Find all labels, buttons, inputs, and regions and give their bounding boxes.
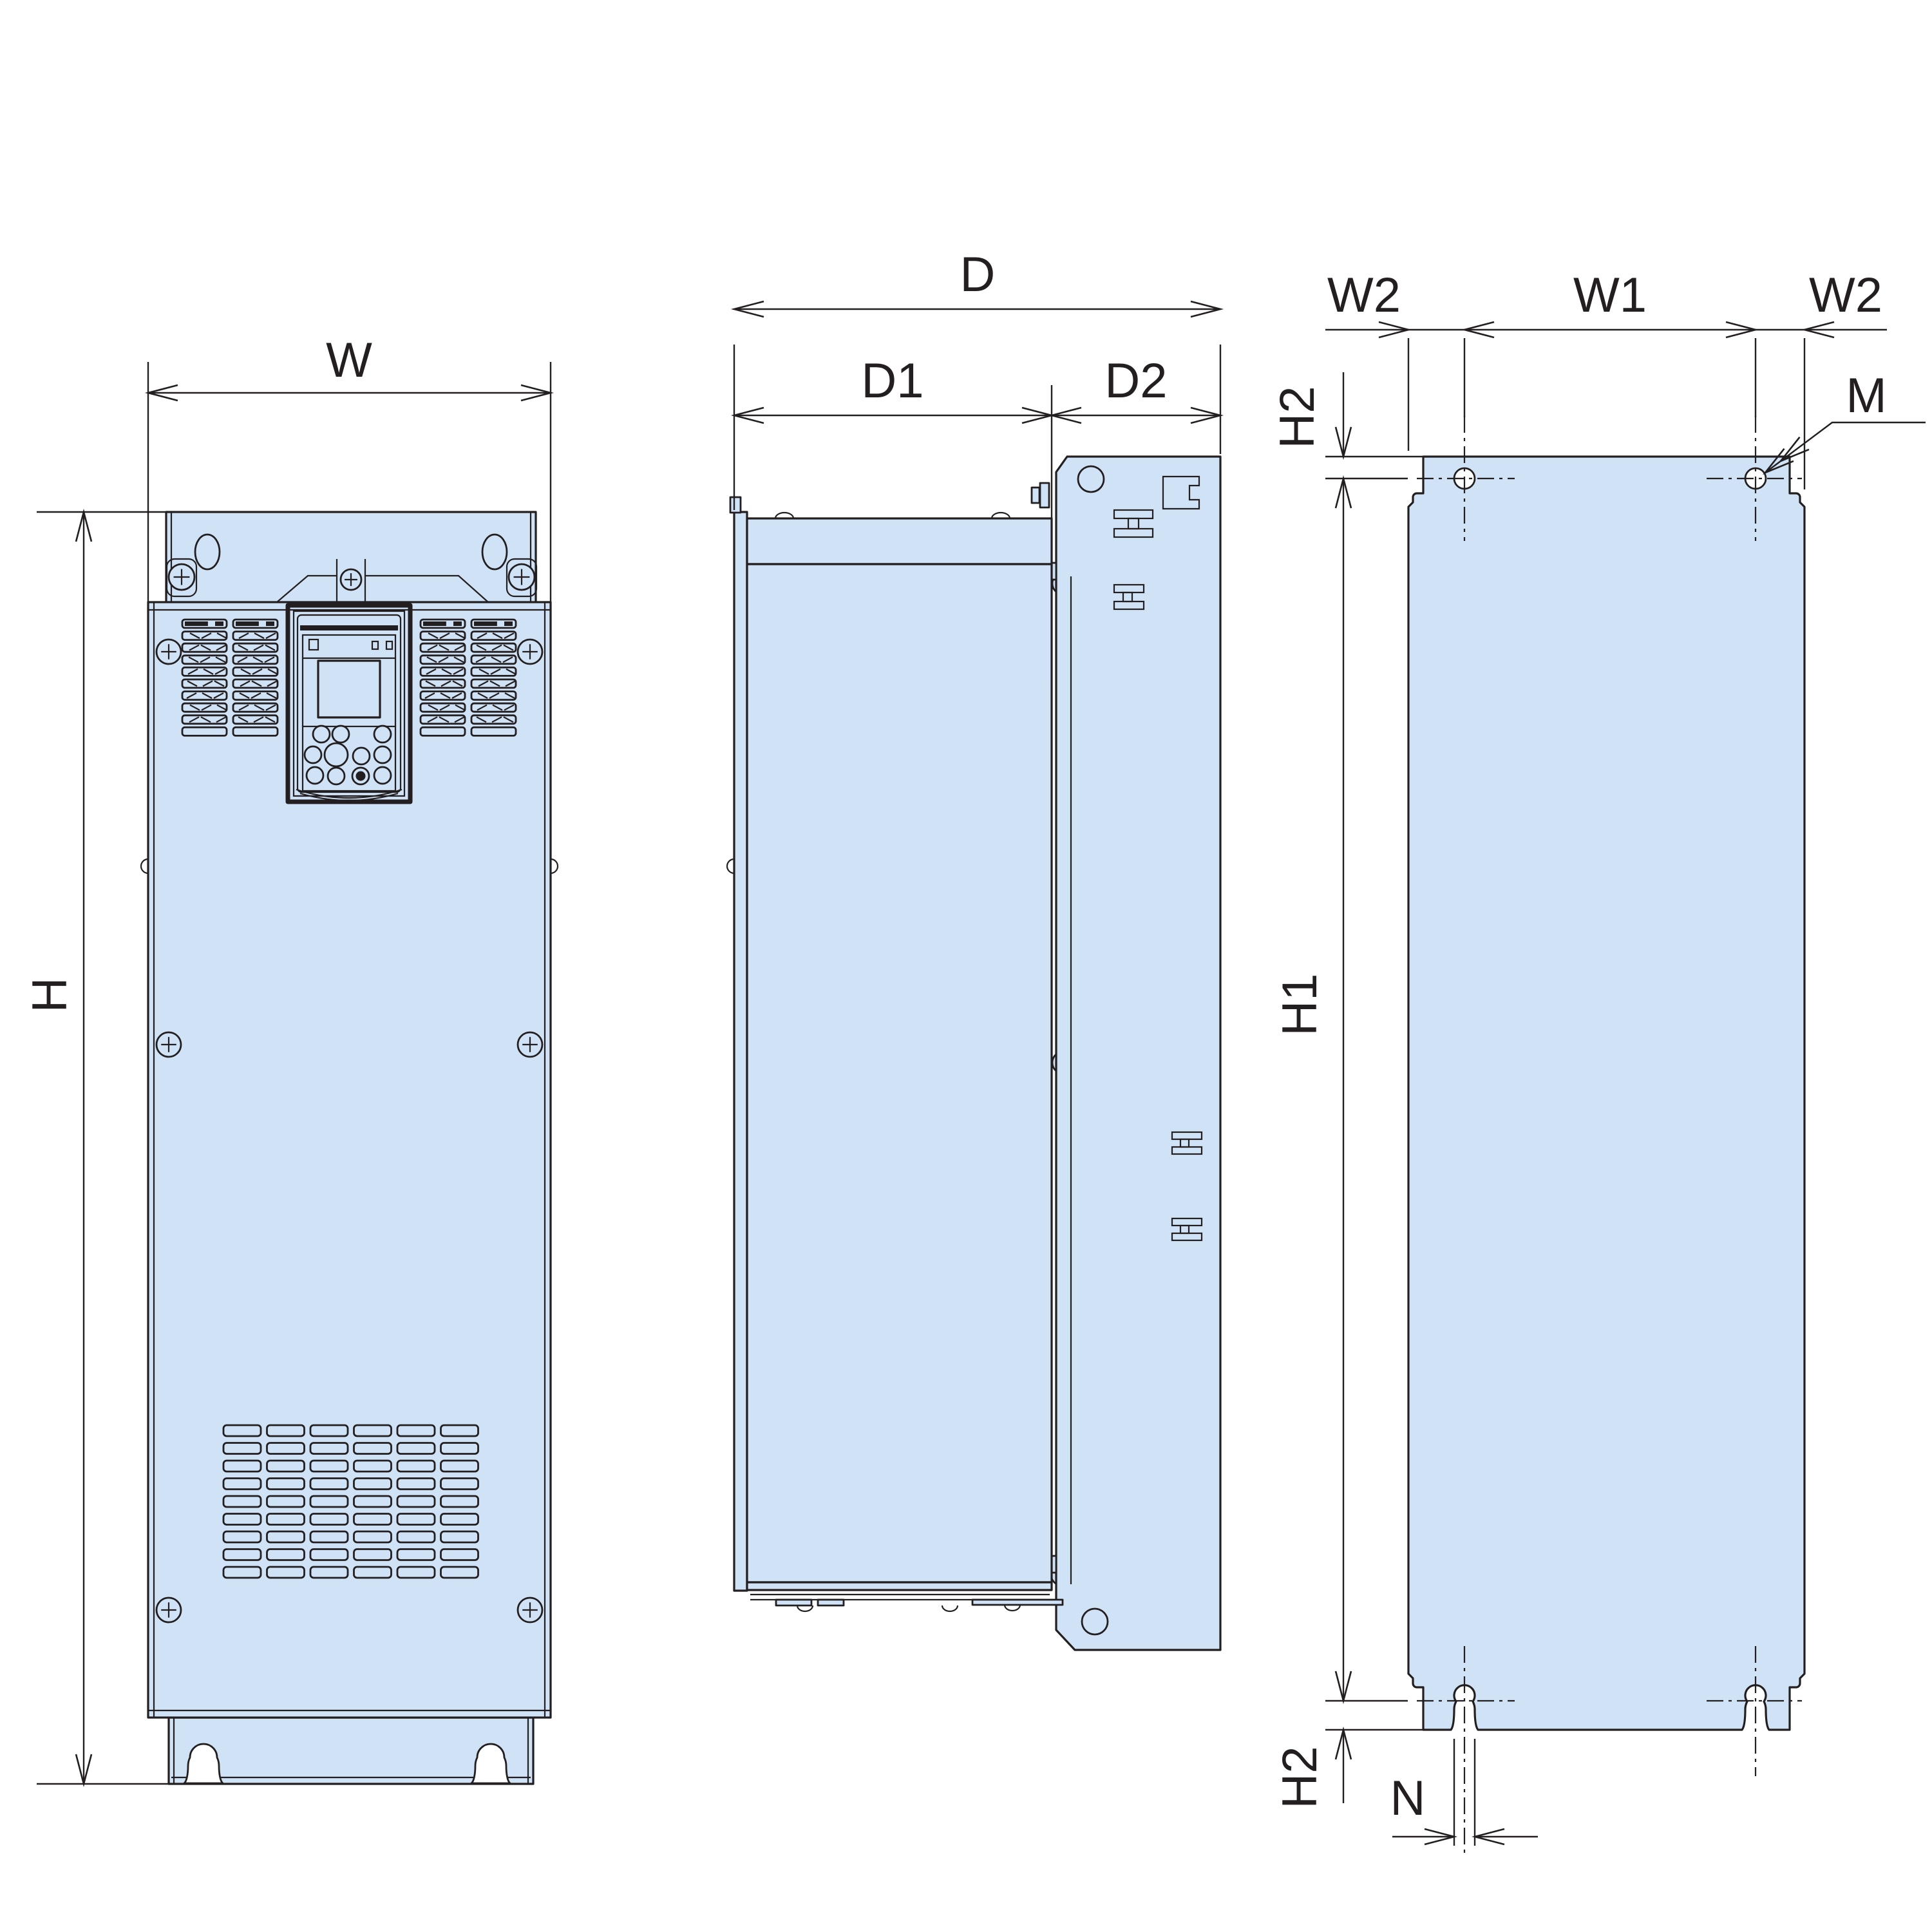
- vent-slot: [471, 703, 516, 712]
- vent-slot: [471, 679, 516, 688]
- vent-slot: [267, 1425, 305, 1436]
- dim-h2-top: H2: [1270, 372, 1425, 478]
- vent-slot: [421, 656, 465, 664]
- vent-slot: [421, 679, 465, 688]
- keypad-button: [313, 726, 330, 743]
- bracket-hole: [482, 535, 507, 569]
- vent-slot: [354, 1567, 392, 1578]
- vent-slot: [182, 679, 227, 688]
- vent-slot: [233, 643, 278, 652]
- dim-label-n: N: [1390, 1771, 1426, 1826]
- vent-slot: [397, 1443, 435, 1454]
- front-body: [141, 602, 558, 1718]
- side-view: D D1 D2: [727, 247, 1220, 1650]
- dim-label-w1: W1: [1573, 268, 1647, 323]
- rear-mounting-plate: [1408, 457, 1804, 1730]
- dimension-drawing: W H: [0, 0, 1932, 1932]
- vent-slot: [310, 1514, 348, 1525]
- vent-slot: [310, 1496, 348, 1507]
- phillips-screw-icon: [518, 1032, 542, 1057]
- phillips-screw-icon: [169, 564, 194, 590]
- vent-slot: [471, 656, 516, 664]
- vent-slot: [441, 1425, 478, 1436]
- keypad-button: [374, 726, 391, 743]
- dim-label-m: M: [1846, 368, 1886, 423]
- keypad-button: [332, 726, 349, 743]
- vent-slot: [223, 1479, 261, 1490]
- vent-slot: [354, 1549, 392, 1560]
- bottom-mounting-bracket: [169, 1718, 533, 1784]
- vent-slot: [223, 1549, 261, 1560]
- vent-slot: [233, 667, 278, 676]
- vent-slot: [421, 703, 465, 712]
- latch-tab: [1032, 488, 1039, 503]
- vent-slot: [310, 1443, 348, 1454]
- bracket-hole: [195, 535, 220, 569]
- vent-slot: [233, 692, 278, 700]
- vent-slot: [441, 1443, 478, 1454]
- vent-slot: [397, 1531, 435, 1542]
- vent-slot: [310, 1531, 348, 1542]
- vent-slot: [471, 620, 516, 628]
- vent-slot: [310, 1461, 348, 1472]
- vent-slot: [233, 703, 278, 712]
- vent-slot: [310, 1567, 348, 1578]
- vent-slot: [471, 643, 516, 652]
- vent-slot: [354, 1443, 392, 1454]
- dim-label-d: D: [960, 247, 996, 302]
- vent-slot: [233, 715, 278, 724]
- vent-slot: [182, 703, 227, 712]
- vent-slot: [441, 1479, 478, 1490]
- vent-slot: [223, 1514, 261, 1525]
- dim-label-w2-left: W2: [1327, 268, 1401, 323]
- vent-slot: [233, 632, 278, 640]
- phillips-screw-icon: [509, 564, 535, 590]
- vent-slot: [471, 727, 516, 735]
- vent-slot: [421, 715, 465, 724]
- rear-view: W2 W1 W2 H2 H1 H2: [1270, 268, 1926, 1855]
- vent-slot: [354, 1496, 392, 1507]
- vent-slot: [182, 632, 227, 640]
- vent-slot: [223, 1531, 261, 1542]
- vent-slot: [223, 1461, 261, 1472]
- vent-slot: [397, 1425, 435, 1436]
- vent-slot: [354, 1531, 392, 1542]
- keypad-button: [374, 746, 391, 763]
- vent-slot: [182, 667, 227, 676]
- front-cover-edge: [734, 512, 747, 1591]
- dim-label-w2-right: W2: [1809, 268, 1882, 323]
- vent-slot: [397, 1567, 435, 1578]
- vent-slot: [441, 1496, 478, 1507]
- side-body: [727, 497, 1063, 1611]
- vent-slot: [397, 1514, 435, 1525]
- top-cover-band: [747, 518, 1052, 564]
- dim-label-h: H: [23, 978, 77, 1013]
- vent-slot: [441, 1549, 478, 1560]
- vent-slot: [182, 620, 227, 628]
- vent-slot: [471, 632, 516, 640]
- phillips-screw-icon: [156, 1032, 181, 1057]
- vent-slot: [267, 1496, 305, 1507]
- dim-label-h2-top: H2: [1270, 386, 1325, 448]
- vent-slot: [310, 1425, 348, 1436]
- vent-slot: [354, 1425, 392, 1436]
- vent-slot: [182, 727, 227, 735]
- vent-slot: [267, 1549, 305, 1560]
- vent-slot: [471, 667, 516, 676]
- vent-slot: [223, 1496, 261, 1507]
- vent-slot: [182, 715, 227, 724]
- keypad-top-bar: [300, 625, 398, 630]
- vent-slot: [267, 1479, 305, 1490]
- keypad-button: [307, 767, 323, 784]
- dim-label-h1: H1: [1273, 973, 1327, 1036]
- plate-hole: [1078, 466, 1104, 492]
- vent-slot: [233, 679, 278, 688]
- vent-slot: [421, 620, 465, 628]
- vent-slot: [421, 632, 465, 640]
- vent-slot: [421, 667, 465, 676]
- vent-slot: [354, 1479, 392, 1490]
- keypad-button: [353, 748, 370, 764]
- plate-hole: [1082, 1609, 1108, 1634]
- vent-slot: [397, 1461, 435, 1472]
- keypad-button-center-dot: [356, 772, 366, 781]
- vent-slot: [354, 1514, 392, 1525]
- vent-slot: [421, 727, 465, 735]
- vent-slot: [182, 692, 227, 700]
- vent-slot: [471, 692, 516, 700]
- vent-slot: [233, 620, 278, 628]
- vent-slot: [471, 715, 516, 724]
- dim-label-d2: D2: [1104, 354, 1167, 408]
- top-mounting-bracket: [166, 512, 536, 605]
- vent-slot: [397, 1496, 435, 1507]
- phillips-screw-icon: [156, 1598, 181, 1622]
- dim-label-h2-bottom: H2: [1273, 1746, 1327, 1808]
- phillips-screw-icon: [156, 639, 181, 664]
- vent-slot: [397, 1549, 435, 1560]
- vent-slot: [310, 1479, 348, 1490]
- vent-slot: [441, 1461, 478, 1472]
- vent-slot: [267, 1567, 305, 1578]
- keypad-button: [305, 746, 321, 763]
- vent-slot: [267, 1531, 305, 1542]
- vent-slot: [267, 1514, 305, 1525]
- vent-slot: [441, 1531, 478, 1542]
- vent-slot: [233, 727, 278, 735]
- vent-slot: [310, 1549, 348, 1560]
- dim-label-d1: D1: [861, 354, 923, 408]
- keypad-button: [328, 768, 345, 784]
- vent-slot: [182, 643, 227, 652]
- vent-slot: [441, 1567, 478, 1578]
- dim-label-w: W: [326, 333, 372, 388]
- dim-h1: H1: [1273, 478, 1351, 1701]
- vent-slot: [441, 1514, 478, 1525]
- vent-slot: [223, 1425, 261, 1436]
- side-mounting-plate: [1032, 457, 1220, 1650]
- vent-slot: [182, 656, 227, 664]
- phillips-screw-icon: [341, 569, 361, 590]
- vent-slot: [267, 1443, 305, 1454]
- vent-slot: [421, 643, 465, 652]
- phillips-screw-icon: [518, 1598, 542, 1622]
- keypad-button: [374, 767, 391, 784]
- vent-slot: [397, 1479, 435, 1490]
- vent-slot: [223, 1443, 261, 1454]
- vent-slot: [267, 1461, 305, 1472]
- keypad-button: [325, 743, 348, 766]
- vent-slot: [354, 1461, 392, 1472]
- vent-slot: [223, 1567, 261, 1578]
- vent-slot: [233, 656, 278, 664]
- latch-tab: [1040, 483, 1049, 507]
- phillips-screw-icon: [518, 639, 542, 664]
- vent-slot: [421, 692, 465, 700]
